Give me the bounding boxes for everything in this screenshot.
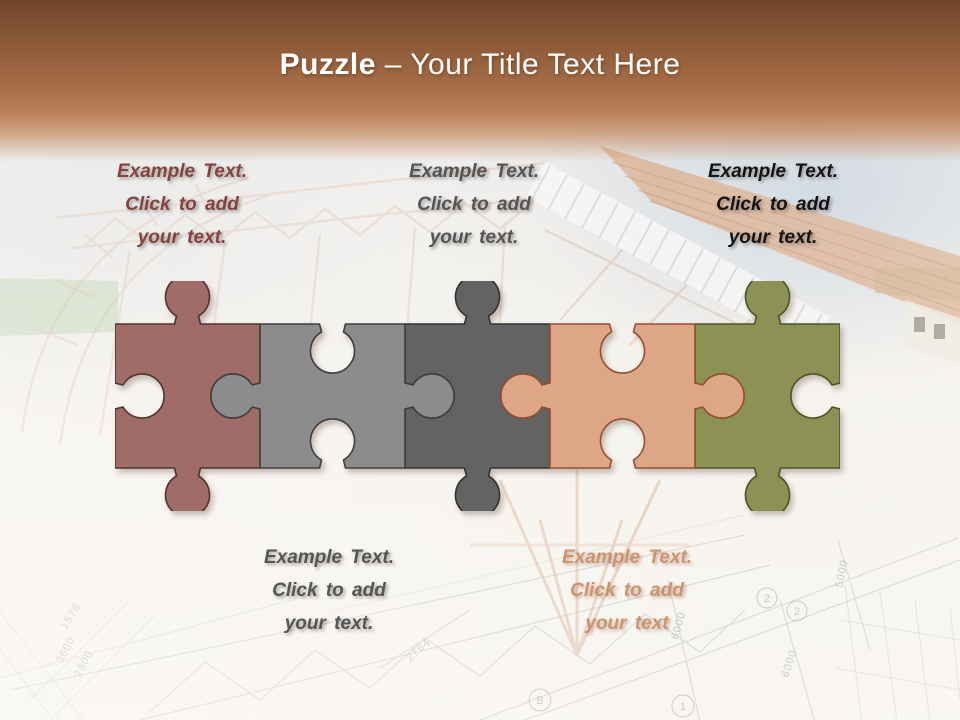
placeholder-line: your text. [229, 607, 429, 640]
placeholder-line: Click to add [527, 574, 727, 607]
placeholder-line: Example Text. [673, 155, 873, 188]
house-window [914, 317, 925, 332]
title-bar: Puzzle – Your Title Text Here [0, 0, 960, 162]
placeholder-line: your text [527, 607, 727, 640]
dim-label: 2764 [404, 636, 433, 664]
placeholder-text-bottom-left[interactable]: Example Text. Click to add your text. [229, 541, 429, 640]
house-window [934, 324, 945, 339]
grid-marker: 1 [680, 701, 686, 713]
placeholder-text-top-right[interactable]: Example Text. Click to add your text. [673, 155, 873, 254]
dim-label: 3600 [54, 635, 78, 666]
blueprint-labels: 1576 3600 2800 2764 6000 6000 5000 [54, 558, 851, 679]
placeholder-line: your text. [82, 221, 282, 254]
placeholder-line: Click to add [82, 188, 282, 221]
placeholder-text-top-left[interactable]: Example Text. Click to add your text. [82, 155, 282, 254]
decorative-shape [835, 585, 960, 720]
placeholder-line: your text. [374, 221, 574, 254]
placeholder-line: Click to add [229, 574, 429, 607]
grid-marker: B [536, 695, 543, 707]
decorative-shape [0, 278, 118, 336]
grid-marker: 2 [764, 593, 770, 605]
placeholder-line: your text. [673, 221, 873, 254]
slide-title[interactable]: Puzzle – Your Title Text Here [0, 48, 960, 82]
placeholder-line: Example Text. [82, 155, 282, 188]
placeholder-line: Click to add [673, 188, 873, 221]
puzzle-strip [115, 281, 840, 511]
dim-label: 1576 [58, 601, 83, 632]
slide-canvas: 1576 3600 2800 2764 6000 6000 5000 B 1 2… [0, 0, 960, 720]
placeholder-line: Example Text. [527, 541, 727, 574]
title-rest: – Your Title Text Here [376, 48, 680, 81]
title-keyword: Puzzle [280, 48, 376, 81]
decorative-shape [0, 612, 85, 720]
placeholder-text-bottom-right[interactable]: Example Text. Click to add your text [527, 541, 727, 640]
placeholder-text-top-center[interactable]: Example Text. Click to add your text. [374, 155, 574, 254]
grid-marker: 2 [794, 606, 800, 618]
dim-label: 2800 [72, 649, 96, 680]
placeholder-line: Click to add [374, 188, 574, 221]
placeholder-line: Example Text. [229, 541, 429, 574]
placeholder-line: Example Text. [374, 155, 574, 188]
dim-label: 6000 [779, 648, 799, 679]
